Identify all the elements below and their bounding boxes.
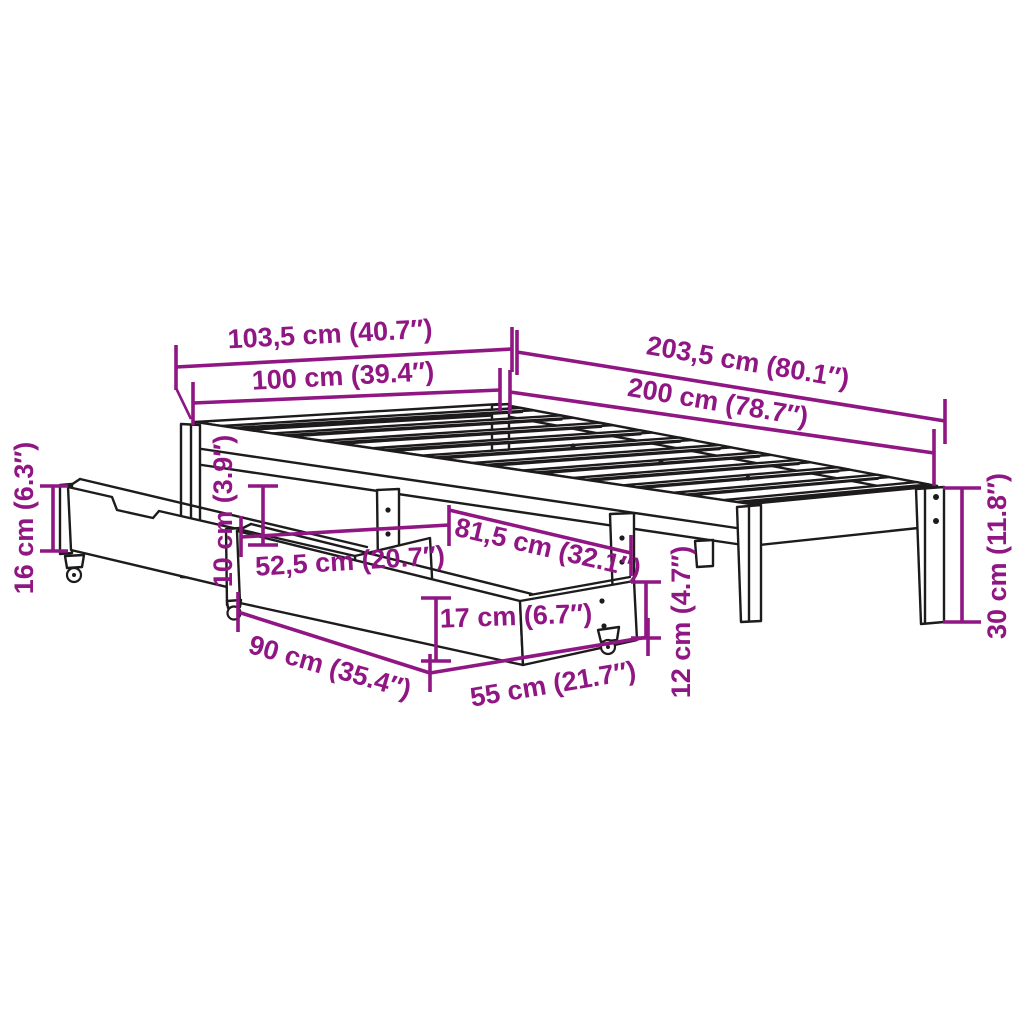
bed-frame-drawing: 103,5 cm (40.7″) 100 cm (39.4″) 203,5 cm… — [0, 0, 1024, 1024]
dim-label: 12 cm (4.7″) — [666, 546, 696, 699]
caster-hub-icon — [72, 573, 76, 577]
caster-bracket-icon — [65, 555, 84, 568]
screw-icon — [933, 518, 939, 524]
dim-label: 17 cm (6.7″) — [439, 598, 592, 633]
mid-support-foot — [695, 540, 713, 567]
foot-far-leg — [916, 487, 944, 624]
dim-leg-height: 30 cm (11.8″) — [943, 473, 1012, 639]
dim-label: 103,5 cm (40.7″) — [227, 314, 433, 355]
dim-label: 10 cm (3.9″) — [208, 435, 238, 588]
slat-screw-icon — [659, 460, 664, 465]
slat-screw-icon — [746, 476, 751, 481]
screw-icon — [619, 535, 624, 540]
dim-label: 16 cm (6.3″) — [9, 442, 39, 595]
product-dimension-diagram: 103,5 cm (40.7″) 100 cm (39.4″) 203,5 cm… — [0, 0, 1024, 1024]
dim-label: 30 cm (11.8″) — [982, 473, 1012, 639]
slat-screw-icon — [571, 444, 576, 449]
screw-icon — [933, 494, 939, 500]
screw-icon — [385, 531, 390, 536]
screw-icon — [599, 598, 604, 603]
screw-icon — [385, 507, 390, 512]
